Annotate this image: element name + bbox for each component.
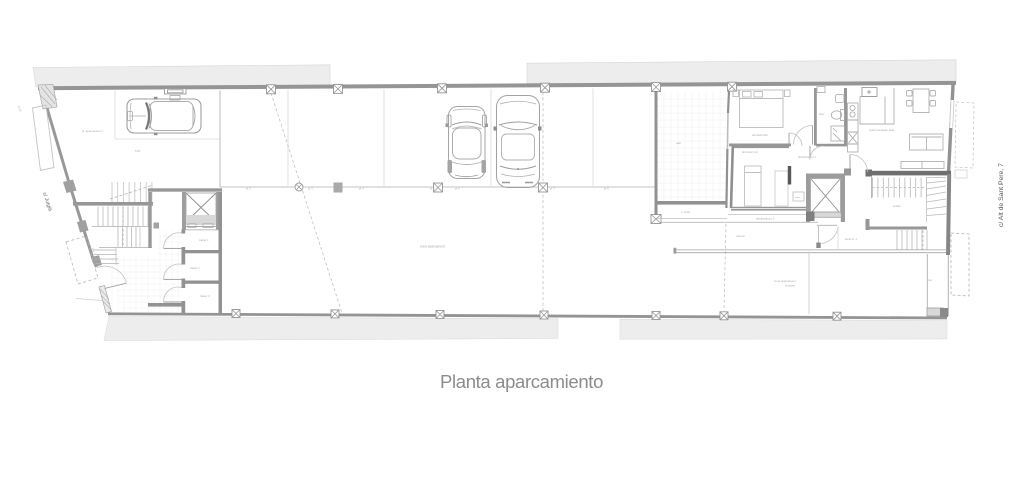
svg-text:pl. 2: pl. 2 (246, 188, 251, 191)
svg-text:dormitori dbl: dormitori dbl (752, 133, 768, 137)
svg-text:cuina menjador sala: cuina menjador sala (869, 128, 894, 132)
svg-text:pl. 5: pl. 5 (430, 188, 435, 191)
svg-text:dormitori ind: dormitori ind (742, 150, 758, 154)
svg-text:pati: pati (676, 141, 681, 145)
svg-text:5,00: 5,00 (135, 149, 141, 153)
svg-text:zona aparcament: zona aparcament (774, 279, 796, 283)
svg-text:moble: moble (795, 197, 802, 199)
svg-text:rampa: rampa (736, 234, 745, 238)
svg-text:c. instal.: c. instal. (681, 210, 691, 214)
svg-text:traster 3: traster 3 (200, 294, 210, 298)
svg-text:bany: bany (819, 113, 825, 116)
svg-text:Planta aparcamiento: Planta aparcamiento (440, 371, 603, 392)
svg-text:accés pl. -1: accés pl. -1 (845, 238, 858, 241)
svg-text:distribuidor pl. 0: distribuidor pl. 0 (756, 217, 775, 221)
svg-text:c/ Alt de Sant Pere, 7: c/ Alt de Sant Pere, 7 (998, 163, 1005, 227)
svg-text:traster 1: traster 1 (199, 238, 209, 242)
svg-text:pl. aparcament 1: pl. aparcament 1 (82, 129, 103, 133)
svg-text:pl. 3: pl. 3 (308, 188, 313, 191)
svg-text:pl. 4: pl. 4 (359, 188, 364, 191)
svg-text:distribuidor pl. 1: distribuidor pl. 1 (798, 155, 817, 159)
svg-text:pl. 8: pl. 8 (604, 188, 609, 191)
svg-text:(2 places): (2 places) (785, 286, 795, 288)
svg-text:pl. 6: pl. 6 (455, 188, 460, 191)
svg-text:pl. 7: pl. 7 (550, 188, 555, 191)
svg-text:traster 2: traster 2 (190, 266, 200, 270)
svg-text:zona aparcament: zona aparcament (420, 245, 445, 249)
svg-text:escala: escala (893, 204, 901, 208)
